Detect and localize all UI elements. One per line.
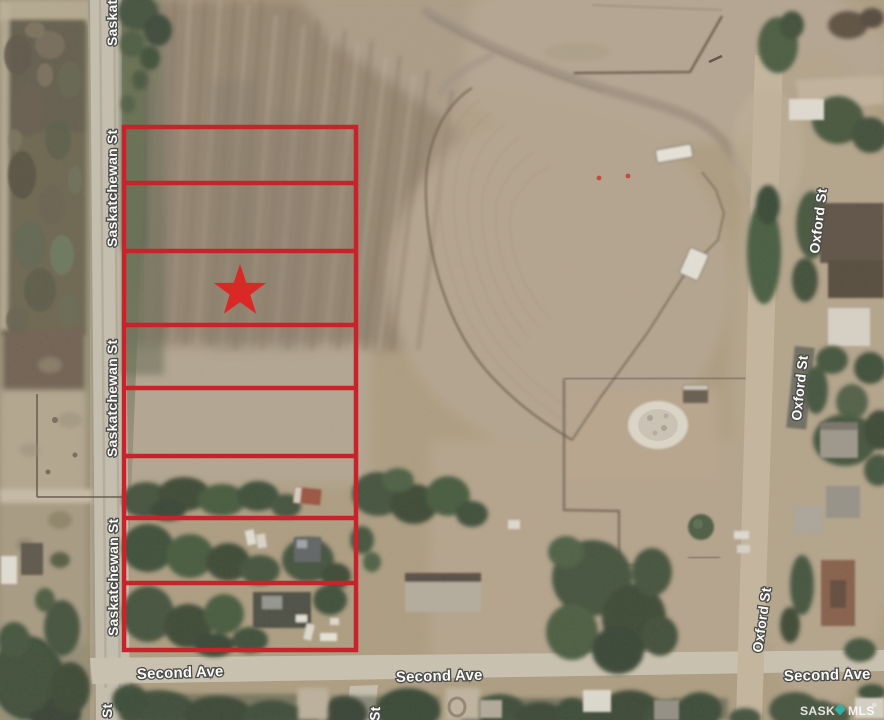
- svg-text:Second Ave: Second Ave: [784, 666, 871, 685]
- svg-text:MLS: MLS: [848, 704, 875, 718]
- svg-text:SASK: SASK: [800, 704, 835, 718]
- svg-text:®: ®: [872, 701, 877, 709]
- svg-text:Second Ave: Second Ave: [137, 663, 224, 683]
- svg-text:Saskatchewan St: Saskatchewan St: [104, 0, 120, 46]
- svg-text:Saskatchewan St: Saskatchewan St: [104, 339, 120, 457]
- svg-text:Saskatchewan St: Saskatchewan St: [104, 129, 120, 247]
- svg-text:Second Ave: Second Ave: [396, 667, 483, 686]
- svg-text:Saskatchewan St: Saskatchewan St: [105, 518, 121, 636]
- svg-text:Saskatchewan St: Saskatchewan St: [99, 703, 115, 720]
